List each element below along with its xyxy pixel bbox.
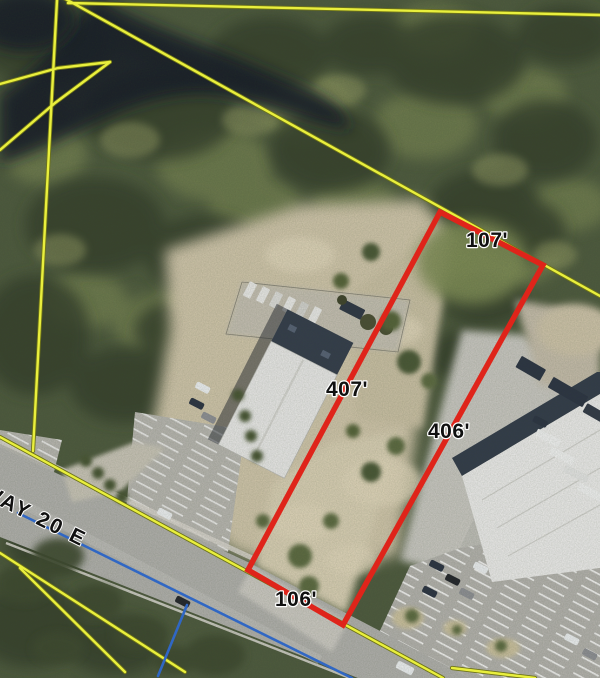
aerial-map-canvas: 107' 407' 406' 106' WAY 20 E bbox=[0, 0, 600, 678]
photo-grain bbox=[0, 0, 600, 678]
dimension-label-west: 407' bbox=[326, 378, 368, 401]
aerial-map: 107' 407' 406' 106' WAY 20 E bbox=[0, 0, 600, 678]
dimension-label-north: 107' bbox=[466, 229, 508, 252]
dimension-label-south: 106' bbox=[275, 588, 317, 611]
dimension-label-east: 406' bbox=[428, 420, 470, 443]
